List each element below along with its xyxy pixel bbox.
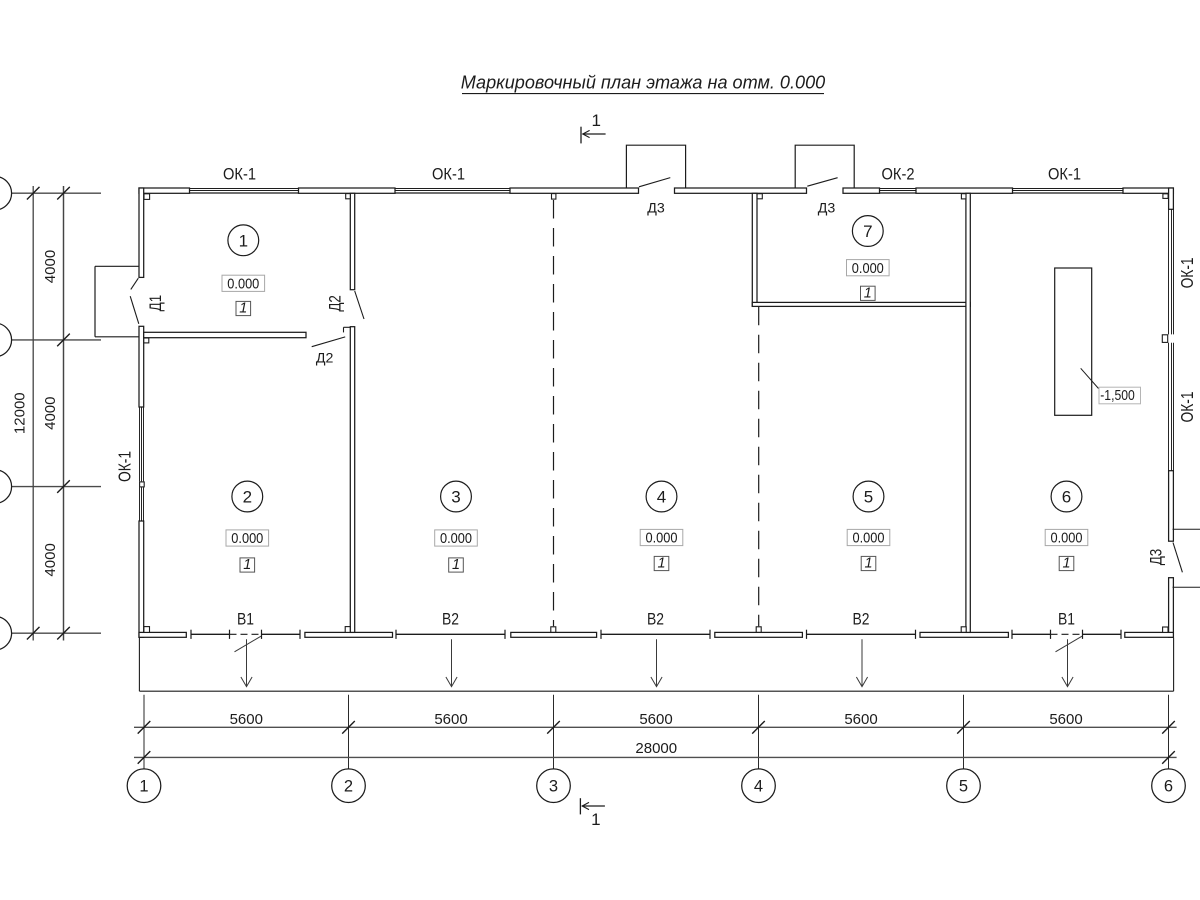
svg-text:ОК-1: ОК-1 [114,451,134,482]
svg-text:Д3: Д3 [1147,549,1165,566]
svg-text:12000: 12000 [11,392,28,434]
svg-text:1: 1 [139,777,148,795]
svg-text:0.000: 0.000 [646,530,678,547]
svg-text:5600: 5600 [230,711,263,728]
svg-text:В2: В2 [442,610,459,629]
svg-text:1: 1 [1062,556,1070,572]
svg-text:4: 4 [754,777,763,795]
svg-text:ОК-1: ОК-1 [223,165,256,183]
svg-text:Д3: Д3 [647,200,665,216]
svg-text:Д1: Д1 [147,295,165,312]
svg-text:2: 2 [243,488,252,507]
svg-text:Д3: Д3 [818,200,836,216]
svg-text:5600: 5600 [1049,711,1082,728]
svg-text:1: 1 [239,301,247,317]
svg-text:0.000: 0.000 [852,260,884,277]
svg-text:1: 1 [591,810,600,829]
svg-text:3: 3 [451,488,460,507]
svg-text:В2: В2 [647,610,664,629]
svg-text:В1: В1 [1058,610,1075,629]
svg-text:4000: 4000 [42,397,59,430]
svg-text:ОК-1: ОК-1 [1177,257,1197,288]
svg-text:5600: 5600 [639,711,672,728]
svg-text:28000: 28000 [635,740,677,757]
svg-text:1: 1 [452,557,460,573]
svg-text:1: 1 [239,232,248,251]
svg-text:0.000: 0.000 [440,530,472,547]
svg-text:4000: 4000 [42,250,59,283]
svg-text:ОК-1: ОК-1 [1048,165,1081,183]
svg-text:5600: 5600 [434,711,467,728]
svg-text:В1: В1 [237,610,254,629]
svg-text:1: 1 [864,556,872,572]
svg-text:0.000: 0.000 [1051,530,1083,547]
svg-text:1: 1 [591,111,600,130]
svg-text:Д2: Д2 [327,295,345,312]
svg-text:В2: В2 [853,610,870,629]
svg-text:2: 2 [344,777,353,795]
svg-text:3: 3 [549,777,558,795]
svg-text:ОК-1: ОК-1 [1177,392,1197,423]
svg-text:6: 6 [1164,777,1173,795]
svg-text:1: 1 [243,557,251,573]
svg-text:Д2: Д2 [316,351,334,367]
svg-text:5600: 5600 [844,711,877,728]
svg-text:0.000: 0.000 [227,276,259,293]
svg-text:5: 5 [959,777,968,795]
svg-text:1: 1 [657,556,665,572]
svg-text:4000: 4000 [42,543,59,576]
svg-text:0.000: 0.000 [231,530,263,547]
svg-text:Маркировочный план этажа на от: Маркировочный план этажа на отм. 0.000 [461,73,825,93]
svg-text:0.000: 0.000 [853,530,885,547]
svg-text:6: 6 [1062,488,1071,507]
svg-text:5: 5 [864,488,873,507]
svg-text:-1,500: -1,500 [1100,388,1135,404]
svg-text:4: 4 [657,488,666,507]
svg-text:ОК-1: ОК-1 [432,165,465,183]
svg-text:7: 7 [863,222,872,241]
svg-text:ОК-2: ОК-2 [882,165,915,183]
svg-text:1: 1 [864,285,872,301]
